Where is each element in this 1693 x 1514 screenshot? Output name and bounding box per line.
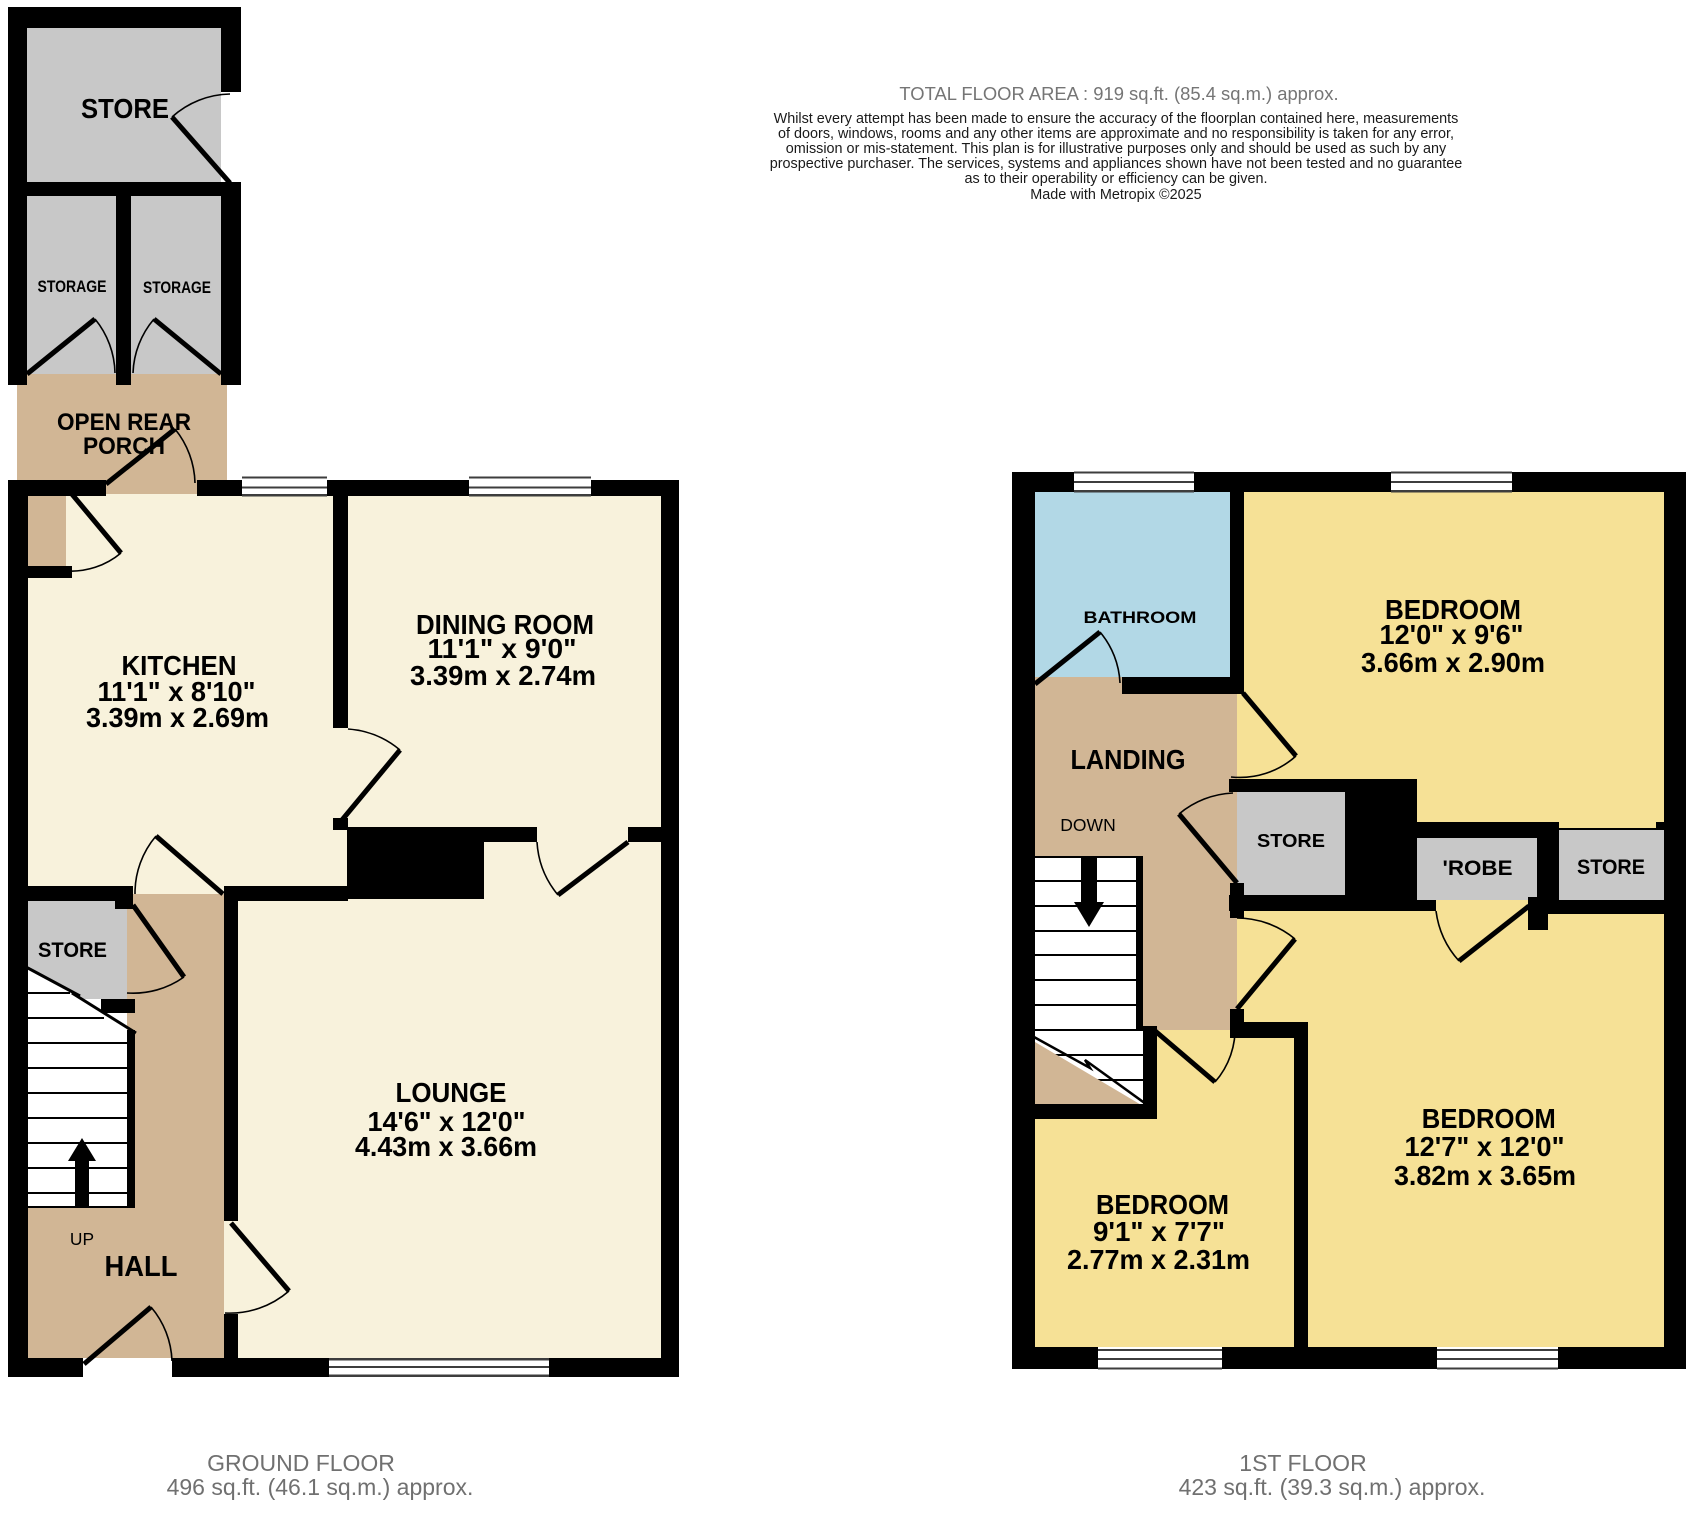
svg-text:LOUNGE: LOUNGE [396, 1077, 507, 1108]
svg-text:HALL: HALL [105, 1251, 178, 1283]
svg-text:12'7" x 12'0": 12'7" x 12'0" [1405, 1131, 1565, 1162]
svg-text:'ROBE: 'ROBE [1443, 857, 1513, 880]
svg-text:DOWN: DOWN [1060, 815, 1115, 835]
svg-text:TOTAL FLOOR AREA : 919 sq.ft.: TOTAL FLOOR AREA : 919 sq.ft. (85.4 sq.m… [899, 83, 1338, 104]
svg-text:omission or mis-statement. Thi: omission or mis-statement. This plan is … [786, 141, 1447, 157]
svg-text:3.39m x 2.74m: 3.39m x 2.74m [410, 660, 596, 691]
svg-text:prospective purchaser. The ser: prospective purchaser. The services, sys… [770, 156, 1463, 172]
svg-text:2.77m x 2.31m: 2.77m x 2.31m [1067, 1244, 1250, 1275]
svg-text:of doors, windows, rooms and a: of doors, windows, rooms and any other i… [778, 126, 1454, 142]
svg-text:9'1" x 7'7": 9'1" x 7'7" [1093, 1216, 1225, 1247]
svg-text:496 sq.ft. (46.1 sq.m.) approx: 496 sq.ft. (46.1 sq.m.) approx. [167, 1474, 474, 1500]
svg-text:BATHROOM: BATHROOM [1084, 608, 1197, 627]
svg-text:STORE: STORE [1577, 854, 1645, 879]
svg-text:GROUND FLOOR: GROUND FLOOR [207, 1450, 395, 1476]
svg-text:12'0" x 9'6": 12'0" x 9'6" [1380, 619, 1524, 650]
svg-text:STORAGE: STORAGE [38, 277, 107, 296]
svg-text:STORE: STORE [38, 938, 107, 962]
svg-text:4.43m x 3.66m: 4.43m x 3.66m [355, 1131, 537, 1162]
svg-text:PORCH: PORCH [83, 433, 165, 460]
svg-text:3.39m x 2.69m: 3.39m x 2.69m [86, 702, 269, 733]
svg-text:Made with Metropix ©2025: Made with Metropix ©2025 [1030, 187, 1201, 203]
svg-text:1ST FLOOR: 1ST FLOOR [1239, 1450, 1366, 1476]
svg-text:UP: UP [70, 1229, 94, 1249]
svg-text:BEDROOM: BEDROOM [1422, 1103, 1556, 1134]
svg-text:423 sq.ft. (39.3 sq.m.) approx: 423 sq.ft. (39.3 sq.m.) approx. [1179, 1474, 1486, 1500]
svg-text:STORE: STORE [81, 93, 169, 124]
svg-text:OPEN REAR: OPEN REAR [57, 409, 191, 436]
svg-text:Whilst every attempt has been: Whilst every attempt has been made to en… [774, 111, 1459, 127]
svg-text:LANDING: LANDING [1071, 744, 1186, 775]
svg-text:3.66m x 2.90m: 3.66m x 2.90m [1361, 647, 1545, 678]
svg-text:STORAGE: STORAGE [143, 278, 211, 297]
svg-text:STORE: STORE [1257, 831, 1325, 851]
svg-text:as to their operability or eff: as to their operability or efficiency ca… [965, 171, 1268, 187]
svg-text:3.82m x 3.65m: 3.82m x 3.65m [1394, 1160, 1576, 1191]
